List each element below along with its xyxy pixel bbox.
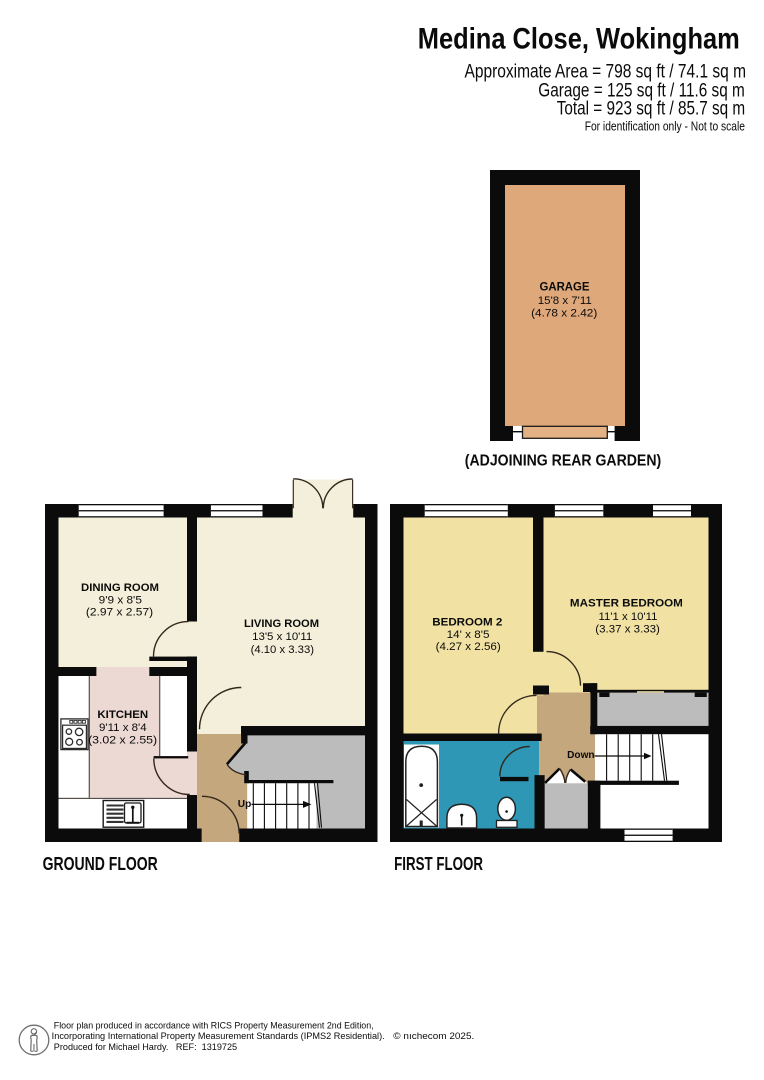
svg-text:LIVING ROOM: LIVING ROOM bbox=[244, 618, 319, 630]
svg-text:(3.37 x 3.33): (3.37 x 3.33) bbox=[595, 624, 660, 636]
svg-text:KITCHEN: KITCHEN bbox=[97, 709, 148, 721]
svg-text:GROUND FLOOR: GROUND FLOOR bbox=[43, 854, 158, 874]
svg-text:Up: Up bbox=[238, 798, 252, 810]
svg-text:11'1 x 10'11: 11'1 x 10'11 bbox=[599, 611, 658, 623]
svg-text:For identification only - Not: For identification only - Not to scale bbox=[585, 118, 745, 133]
svg-text:Medina Close, Wokingham: Medina Close, Wokingham bbox=[418, 23, 740, 56]
svg-text:Floor plan produced in accorda: Floor plan produced in accordance with R… bbox=[54, 1020, 374, 1030]
svg-text:Incorporating International Pr: Incorporating International Property Mea… bbox=[52, 1031, 385, 1041]
svg-text:(2.97 x 2.57): (2.97 x 2.57) bbox=[86, 607, 153, 619]
svg-text:14' x 8'5: 14' x 8'5 bbox=[447, 629, 490, 641]
svg-text:Approximate Area = 798 sq ft /: Approximate Area = 798 sq ft / 74.1 sq m bbox=[465, 62, 747, 83]
svg-text:Down: Down bbox=[567, 749, 595, 761]
svg-text:Total = 923 sq ft / 85.7 sq m: Total = 923 sq ft / 85.7 sq m bbox=[557, 99, 746, 120]
svg-text:MASTER BEDROOM: MASTER BEDROOM bbox=[570, 598, 683, 610]
svg-text:GARAGE: GARAGE bbox=[540, 281, 590, 294]
svg-text:FIRST FLOOR: FIRST FLOOR bbox=[394, 854, 483, 874]
svg-text:9'9 x 8'5: 9'9 x 8'5 bbox=[99, 595, 142, 607]
svg-text:DINING ROOM: DINING ROOM bbox=[81, 582, 159, 594]
svg-text:Produced for Michael Hardy.: Produced for Michael Hardy. REF: 1319725 bbox=[54, 1042, 237, 1052]
svg-text:15'8 x 7'11: 15'8 x 7'11 bbox=[538, 295, 592, 307]
svg-text:(4.78 x 2.42): (4.78 x 2.42) bbox=[531, 308, 597, 320]
svg-text:BEDROOM 2: BEDROOM 2 bbox=[432, 617, 502, 629]
svg-text:(4.10 x 3.33): (4.10 x 3.33) bbox=[251, 644, 315, 656]
svg-text:(3.02 x 2.55): (3.02 x 2.55) bbox=[88, 734, 157, 746]
svg-text:(4.27 x 2.56): (4.27 x 2.56) bbox=[436, 641, 501, 653]
svg-text:13'5 x 10'11: 13'5 x 10'11 bbox=[252, 631, 312, 643]
svg-text:(ADJOINING REAR GARDEN): (ADJOINING REAR GARDEN) bbox=[465, 453, 661, 470]
svg-text:9'11 x 8'4: 9'11 x 8'4 bbox=[99, 722, 147, 734]
svg-text:© nıchecom 2025.: © nıchecom 2025. bbox=[393, 1031, 474, 1042]
